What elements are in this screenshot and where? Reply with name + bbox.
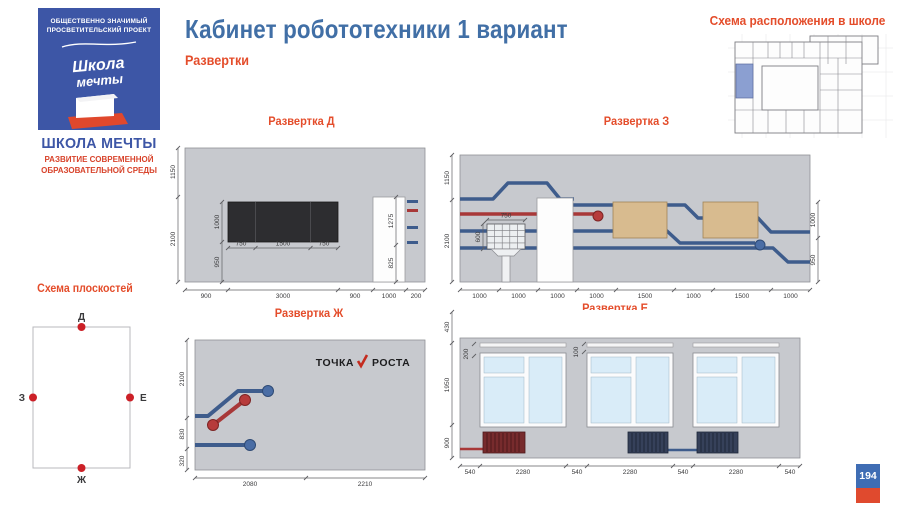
dim-1150: 1150	[170, 165, 177, 179]
red-node	[593, 211, 603, 221]
dim-zb0: 1000	[472, 293, 487, 300]
blackboard	[228, 202, 338, 242]
radiator-navy-2	[697, 432, 738, 453]
dim-eb0: 540	[465, 469, 476, 476]
dim-zh320: 320	[179, 455, 186, 466]
dim-zb2: 1000	[550, 293, 565, 300]
logo-swash-icon	[54, 39, 144, 49]
label-d: Д	[78, 312, 85, 323]
dim-e100: 100	[573, 346, 580, 357]
dot-right	[126, 394, 134, 402]
logo-tagline: РАЗВИТИЕ СОВРЕМЕННОЙ ОБРАЗОВАТЕЛЬНОЙ СРЕ…	[38, 155, 160, 176]
dim-1275: 1275	[388, 213, 395, 228]
elevation-d-drawing: 1150 2100 1000 950 750 1500 750 1275 825…	[168, 142, 435, 304]
dim-2100: 2100	[170, 231, 177, 246]
highlighted-room	[736, 64, 753, 98]
dim-zb1: 1000	[511, 293, 526, 300]
dim-750a: 750	[236, 241, 247, 248]
blue-node-1	[263, 386, 274, 397]
blue-node	[755, 240, 765, 250]
dim-z1000r: 1000	[810, 212, 817, 227]
dim-zb5: 1000	[686, 293, 701, 300]
dim-zh2080: 2080	[243, 481, 258, 488]
badge-red-block	[856, 488, 880, 503]
door-z	[537, 198, 573, 282]
logo-project-line1: ОБЩЕСТВЕННО ЗНАЧИМЫЙ	[38, 17, 160, 26]
room-outline	[33, 327, 130, 468]
dim-z1150: 1150	[444, 171, 451, 185]
label-zh: Ж	[76, 475, 87, 486]
page-number-badge: 194	[856, 464, 880, 503]
elevation-d-title: Развертка Д	[179, 114, 425, 128]
dim-e200: 200	[463, 348, 470, 359]
elevation-z-drawing: 1150 2100 1000 950 750 600 1000 1000 100…	[444, 142, 829, 304]
dim-zb3: 1000	[589, 293, 604, 300]
dim-e430: 430	[444, 321, 451, 332]
elevation-zh-title: Развертка Ж	[188, 306, 429, 320]
location-map-title: Схема расположения в школе	[705, 14, 890, 28]
radiator-red	[483, 432, 525, 453]
tan-board-2	[703, 202, 758, 238]
dim-eb3: 2280	[623, 469, 638, 476]
logo-tagline-line2: ОБРАЗОВАТЕЛЬНОЙ СРЕДЫ	[38, 166, 160, 177]
dim-1000: 1000	[214, 214, 221, 229]
dim-b200: 200	[411, 293, 422, 300]
dim-zb7: 1000	[783, 293, 798, 300]
dot-left	[29, 394, 37, 402]
dot-top	[78, 323, 86, 331]
dim-b3000: 3000	[276, 293, 291, 300]
dim-e1950: 1950	[444, 377, 451, 392]
plane-schema-title: Схема плоскостей	[21, 283, 150, 295]
dim-z750: 750	[501, 213, 512, 220]
logo-project-text: ОБЩЕСТВЕННО ЗНАЧИМЫЙ ПРОСВЕТИТЕЛЬСКИЙ ПР…	[38, 8, 160, 35]
logo-tagline-line1: РАЗВИТИЕ СОВРЕМЕННОЙ	[38, 155, 160, 166]
window-1	[480, 353, 566, 427]
elevation-e-drawing: 430 1950 900 200 100 540 2280 540 2280 5…	[444, 306, 850, 486]
logo-blue-box: ОБЩЕСТВЕННО ЗНАЧИМЫЙ ПРОСВЕТИТЕЛЬСКИЙ ПР…	[38, 8, 160, 130]
window-2	[587, 353, 673, 427]
dim-eb4: 540	[678, 469, 689, 476]
logo-script-text: Школа мечты	[37, 53, 161, 94]
page-title: Кабинет робототехники 1 вариант	[185, 14, 568, 45]
dot-bottom	[78, 464, 86, 472]
tan-board-1	[613, 202, 667, 238]
dim-1500: 1500	[276, 241, 291, 248]
dim-b900a: 900	[201, 293, 212, 300]
dim-zb4: 1500	[638, 293, 653, 300]
dim-zh830: 830	[179, 428, 186, 439]
dim-750b: 750	[319, 241, 330, 248]
dim-b900b: 900	[350, 293, 361, 300]
logo-building-icon	[62, 89, 136, 131]
dim-eb1: 2280	[516, 469, 531, 476]
elevation-z-title: Развертка З	[459, 114, 813, 128]
dim-825: 825	[388, 257, 395, 268]
dim-eb6: 540	[785, 469, 796, 476]
plane-schema-diagram: Д Е Ж З	[18, 312, 158, 490]
window-3	[693, 353, 779, 427]
logo-name: ШКОЛА МЕЧТЫ	[41, 135, 157, 152]
curtain-slots	[480, 343, 779, 347]
elevation-zh-drawing: ТОЧКА РОСТА 2100 830 320 2080 2210	[178, 328, 440, 493]
blue-node-2	[245, 440, 256, 451]
page-number: 194	[856, 464, 880, 488]
dim-zh2210: 2210	[358, 481, 373, 488]
dim-z950r: 950	[810, 254, 817, 265]
logo-project-line2: ПРОСВЕТИТЕЛЬСКИЙ ПРОЕКТ	[38, 26, 160, 35]
red-node-1	[208, 420, 219, 431]
dim-950: 950	[214, 256, 221, 267]
windows	[480, 353, 779, 427]
red-node-2	[240, 395, 251, 406]
radiator-navy-1	[628, 432, 668, 453]
school-logo: ОБЩЕСТВЕННО ЗНАЧИМЫЙ ПРОСВЕТИТЕЛЬСКИЙ ПР…	[38, 8, 160, 176]
dim-z2100: 2100	[444, 233, 451, 248]
tochka-text: ТОЧКА	[316, 357, 354, 369]
dim-eb2: 540	[572, 469, 583, 476]
document-page: ОБЩЕСТВЕННО ЗНАЧИМЫЙ ПРОСВЕТИТЕЛЬСКИЙ ПР…	[0, 0, 900, 506]
dim-z600: 600	[475, 231, 482, 242]
page-subtitle: Развертки	[185, 52, 249, 68]
dim-b1000: 1000	[382, 293, 397, 300]
dim-zb6: 1500	[735, 293, 750, 300]
dim-e900: 900	[444, 437, 451, 448]
label-z: З	[19, 393, 25, 404]
rosta-text: РОСТА	[372, 357, 410, 369]
label-e: Е	[140, 393, 147, 404]
dim-eb5: 2280	[729, 469, 744, 476]
dim-zh2100: 2100	[179, 371, 186, 386]
